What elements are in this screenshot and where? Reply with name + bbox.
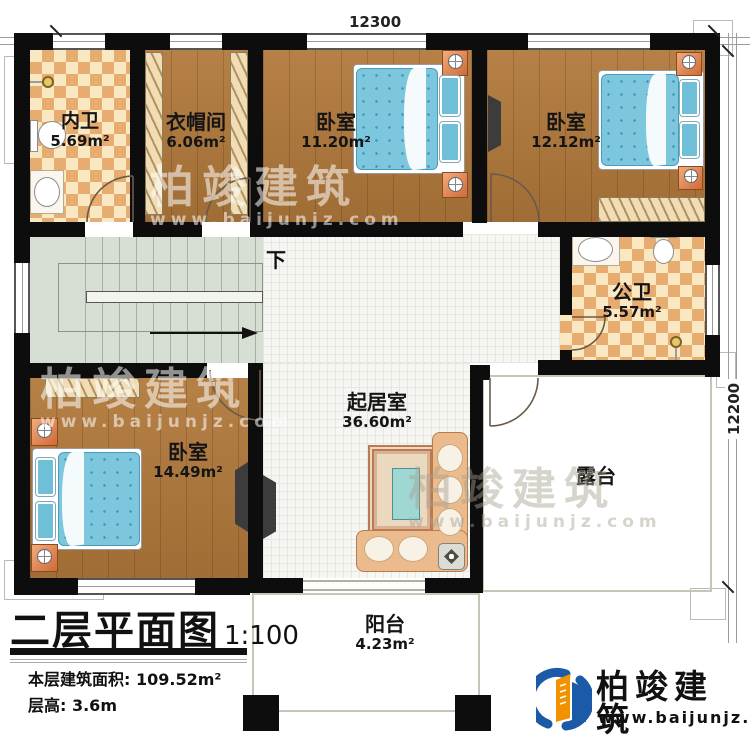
pillow [680,122,699,158]
wall [133,222,202,237]
coffee-table [392,468,420,520]
wall [470,365,490,380]
room-label-bedroom-1: 卧室 11.20m² [301,112,371,151]
room-label-bedroom-3: 卧室 14.49m² [153,442,223,481]
window [78,578,195,595]
toilet-tank [30,120,38,152]
sink-icon [34,177,60,207]
room-label-public-bath: 公卫 5.57m² [602,282,661,321]
wall [470,365,483,593]
wall [538,222,705,237]
wardrobe [45,378,140,398]
pillow [36,502,55,540]
sofa-cushion [364,536,394,562]
sofa-cushion [437,476,463,504]
room-label-inner-bath: 内卫 5.69m² [50,112,109,150]
nightstand-knob [37,423,52,438]
toilet-icon [653,239,674,264]
window [14,263,30,333]
bed-sheet [404,66,426,171]
bed-sheet [62,450,84,547]
tv-icon [263,475,276,539]
bed-mattress [601,74,679,166]
title-underline-thin [10,662,247,663]
title-underline [10,648,247,655]
window [705,265,720,335]
stair-arrow-line [150,332,242,334]
wall [30,363,207,378]
nightstand-knob [684,169,698,183]
drawing-scale: 1:100 [224,621,299,651]
floor-area-text: 本层建筑面积: 109.52m² [28,666,221,690]
stair-stringer [86,291,263,303]
dim-line-right [728,33,729,643]
brand-url: www.baijunjz.com [598,708,750,727]
window [170,33,222,50]
pillow [440,76,460,116]
brand-logo: 柏竣建筑 www.baijunjz.com [536,664,746,734]
sink-icon [578,237,613,262]
stair-arrow-head [242,327,258,339]
room-label-living: 起居室 36.60m² [342,392,412,431]
nightstand-knob [37,549,52,564]
pillar [455,695,491,731]
tv-icon [235,462,248,532]
wardrobe [145,52,163,215]
room-label-bedroom-2: 卧室 12.12m² [531,112,601,151]
title-underline-thin [10,659,247,660]
room-label-balcony: 阳台 4.23m² [355,614,414,653]
nightstand-knob [448,177,463,192]
sofa-cushion [437,444,463,472]
floor-plan-page: 12300 12200 下 [0,0,750,739]
stair-direction-label: 下 [266,244,286,273]
wall [130,50,145,222]
brand-logo-icon [536,666,592,734]
sliding-door [303,580,425,591]
wall [472,50,487,223]
dim-top-value: 12300 [345,13,405,31]
floor-hall [263,234,560,363]
wardrobe [598,197,705,222]
wall [30,222,85,237]
sofa-cushion [398,536,428,562]
pillow [680,80,699,116]
wardrobe [230,52,248,215]
floor-drain-icon [670,336,682,348]
dim-right-value: 12200 [725,379,743,439]
nightstand-knob [448,54,463,69]
pillow [36,458,55,496]
wall [250,578,303,593]
extension-box [690,588,726,620]
room-label-terrace: 露台 [576,466,616,487]
sill-line-right [736,33,737,643]
room-label-cloakroom: 衣帽间 6.06m² [166,112,226,151]
pillow [440,122,460,162]
wall [560,350,572,363]
wall [248,50,263,222]
window [307,33,426,50]
window [528,33,650,50]
wall [250,222,463,237]
wall [560,237,572,315]
floor-height-text: 层高: 3.6m [28,692,117,716]
wall [248,363,263,578]
nightstand-knob [682,55,696,69]
drain-stem [675,348,677,360]
stove-dot [449,554,454,559]
sofa-cushion [437,508,463,536]
pillar [243,695,279,731]
tv-icon [488,95,501,152]
shower-icon [42,76,54,88]
bed-sheet [646,73,666,168]
